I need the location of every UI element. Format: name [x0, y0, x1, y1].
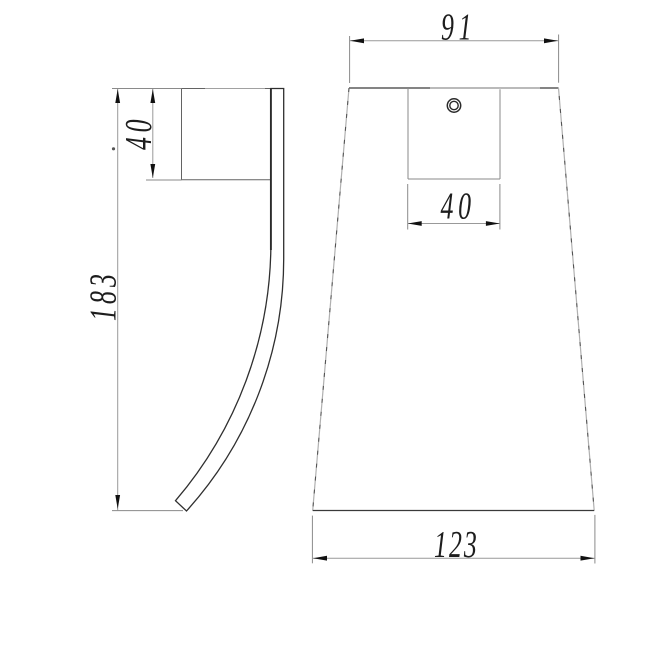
svg-text:183: 183 [83, 270, 125, 321]
svg-text:123: 123 [434, 524, 479, 566]
svg-text:40: 40 [118, 115, 160, 150]
svg-text:91: 91 [441, 7, 476, 49]
svg-text:40: 40 [441, 186, 476, 228]
